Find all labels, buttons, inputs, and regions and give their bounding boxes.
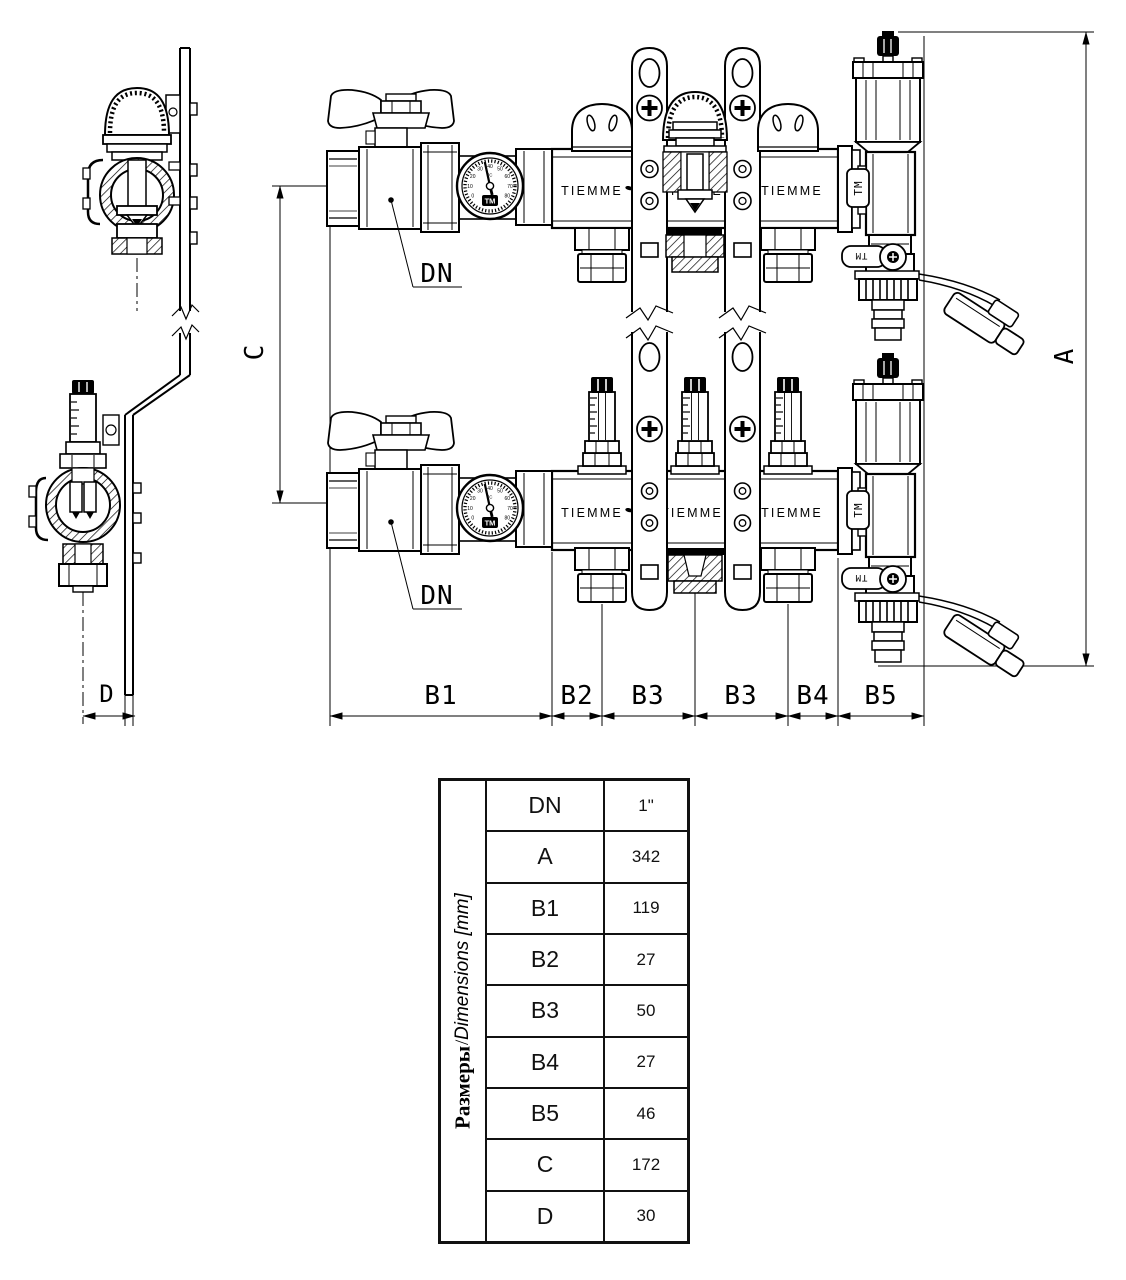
dimensions-table: Размеры / Dimensions [mm] DN 1" A 342 B1… <box>438 778 690 1244</box>
row-label: B4 <box>487 1038 605 1087</box>
sectioned-valve <box>663 92 727 272</box>
dim-label-b3: B3 <box>724 681 757 711</box>
row-label: B1 <box>487 884 605 933</box>
row-label: C <box>487 1140 605 1189</box>
row-value: 46 <box>605 1089 687 1138</box>
dim-label-b3: B3 <box>631 681 664 711</box>
row-value: 1" <box>605 781 687 830</box>
table-header-ru: Размеры <box>451 1045 476 1128</box>
table-row: DN 1" <box>487 781 687 832</box>
dim-label-b1: B1 <box>424 681 457 711</box>
dim-label-d: D <box>99 680 114 708</box>
side-view-top-valve <box>83 88 180 311</box>
row-value: 27 <box>605 1038 687 1087</box>
table-row: D 30 <box>487 1192 687 1241</box>
dim-label-a: A <box>1050 348 1080 365</box>
table-row: B1 119 <box>487 884 687 935</box>
row-value: 50 <box>605 986 687 1035</box>
table-row: A 342 <box>487 832 687 883</box>
table-row: B5 46 <box>487 1089 687 1140</box>
row-label: DN <box>487 781 605 830</box>
row-label: B2 <box>487 935 605 984</box>
technical-drawing-page: 0 10 20 30 40 50 60 70 80 °C TM <box>0 0 1126 1280</box>
table-row: B4 27 <box>487 1038 687 1089</box>
table-header-column: Размеры / Dimensions [mm] <box>441 781 487 1241</box>
table-row: C 172 <box>487 1140 687 1191</box>
dn-label: DN <box>420 581 453 611</box>
table-rows: DN 1" A 342 B1 119 B2 27 B3 50 B4 27 B5 … <box>487 781 687 1241</box>
sectioned-outlet <box>666 548 724 593</box>
row-value: 30 <box>605 1192 687 1241</box>
table-header-en: Dimensions [mm] <box>452 893 474 1040</box>
dim-label-b4: B4 <box>796 681 829 711</box>
dn-label: DN <box>420 259 453 289</box>
side-view-bottom-valve <box>29 380 120 724</box>
row-label: A <box>487 832 605 881</box>
dim-label-b5: B5 <box>864 681 897 711</box>
side-view <box>29 48 199 724</box>
row-label: D <box>487 1192 605 1241</box>
row-label: B5 <box>487 1089 605 1138</box>
table-header-label: Размеры / Dimensions [mm] <box>441 781 485 1241</box>
table-row: B3 50 <box>487 986 687 1037</box>
table-row: B2 27 <box>487 935 687 986</box>
row-value: 342 <box>605 832 687 881</box>
dim-label-c: C <box>240 344 270 361</box>
row-value: 119 <box>605 884 687 933</box>
row-value: 27 <box>605 935 687 984</box>
row-label: B3 <box>487 986 605 1035</box>
row-value: 172 <box>605 1140 687 1189</box>
dim-label-b2: B2 <box>560 681 593 711</box>
